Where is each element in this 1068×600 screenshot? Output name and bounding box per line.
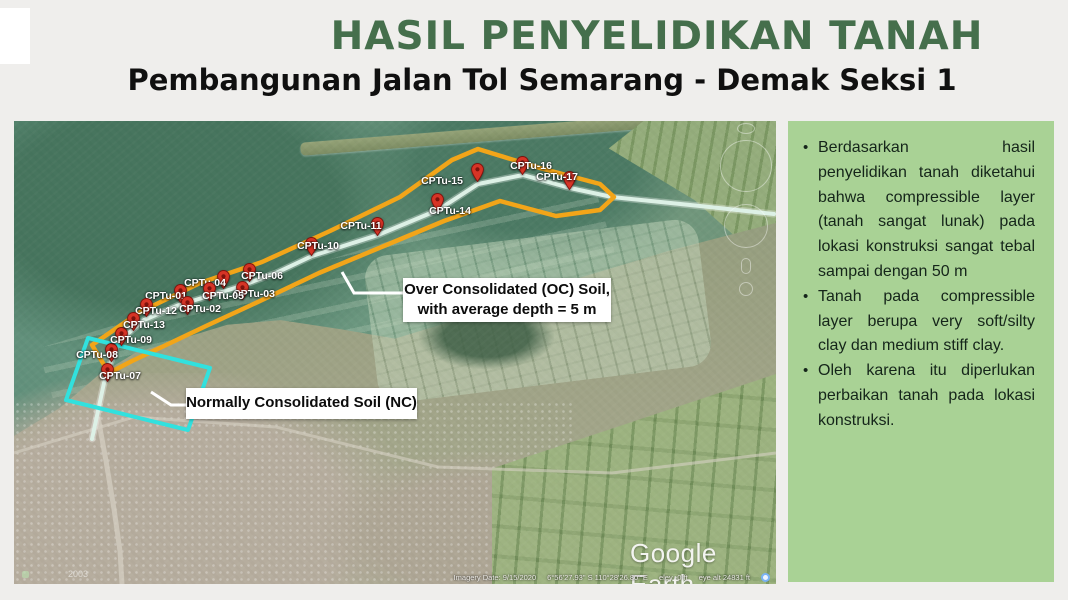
cpt-pin-cptu-15[interactable] xyxy=(471,163,484,182)
zoom-knob-icon[interactable] xyxy=(739,282,753,296)
bullet-text: Tanah pada compressible layer berupa ver… xyxy=(818,285,1035,359)
cpt-label-cptu-11: CPTu-11 xyxy=(340,220,381,232)
corner-accent xyxy=(0,8,30,64)
street-view-icon[interactable] xyxy=(741,258,751,274)
look-control-icon[interactable] xyxy=(737,123,755,134)
cpt-label-cptu-10: CPTu-10 xyxy=(297,240,339,252)
bullet-text: Oleh karena itu diperlukan perbaikan tan… xyxy=(818,359,1035,433)
bullet-dot: • xyxy=(803,136,818,285)
cpt-label-cptu-12: CPTu-12 xyxy=(135,305,177,317)
cpt-label-cptu-13: CPTu-13 xyxy=(123,319,165,331)
status-globe-icon xyxy=(761,573,770,582)
map-status-bar: Imagery Date: 9/15/2020 6°56'27.93" S 11… xyxy=(454,573,770,582)
imagery-date: Imagery Date: 9/15/2020 xyxy=(454,573,537,582)
notes-bullet-list: •Berdasarkan hasil penyelidikan tanah di… xyxy=(803,136,1035,434)
bullet-item: •Oleh karena itu diperlukan perbaikan ta… xyxy=(803,359,1035,433)
satellite-map[interactable]: CPTu-01CPTu-02CPTu-03CPTu-04CPTu-05CPTu-… xyxy=(14,121,776,584)
cpt-label-cptu-15: CPTu-15 xyxy=(421,175,463,187)
cpt-markers-layer: CPTu-01CPTu-02CPTu-03CPTu-04CPTu-05CPTu-… xyxy=(14,121,776,584)
bullet-dot: • xyxy=(803,285,818,359)
bullet-item: •Tanah pada compressible layer berupa ve… xyxy=(803,285,1035,359)
cpt-label-cptu-14: CPTu-14 xyxy=(429,205,471,217)
bullet-text: Berdasarkan hasil penyelidikan tanah dik… xyxy=(818,136,1035,285)
cpt-label-cptu-17: CPTu-17 xyxy=(536,171,578,183)
compass-ring-icon[interactable] xyxy=(720,140,772,192)
history-year: 2003 xyxy=(68,569,88,579)
coordinates: 6°56'27.93" S 110°28'26.80" E xyxy=(547,573,648,582)
oc-soil-label-line2: with average depth = 5 m xyxy=(403,300,611,320)
oc-soil-label-line1: Over Consolidated (OC) Soil, xyxy=(403,280,611,300)
navigation-controls[interactable] xyxy=(717,123,775,296)
history-slider-icon[interactable] xyxy=(22,571,29,578)
pan-ring-icon[interactable] xyxy=(724,204,768,248)
cpt-label-cptu-07: CPTu-07 xyxy=(99,370,141,382)
page-subtitle: Pembangunan Jalan Tol Semarang - Demak S… xyxy=(30,63,1054,97)
cpt-label-cptu-09: CPTu-09 xyxy=(110,334,152,346)
bullet-item: •Berdasarkan hasil penyelidikan tanah di… xyxy=(803,136,1035,285)
cpt-label-cptu-02: CPTu-02 xyxy=(179,303,221,315)
oc-soil-label: Over Consolidated (OC) Soil, with averag… xyxy=(403,278,611,322)
notes-panel: •Berdasarkan hasil penyelidikan tanah di… xyxy=(788,121,1054,582)
cpt-label-cptu-08: CPTu-08 xyxy=(76,349,118,361)
elevation: elev -0 ft xyxy=(659,573,688,582)
slide-background: HASIL PENYELIDIKAN TANAH Pembangunan Jal… xyxy=(0,0,1068,600)
bullet-dot: • xyxy=(803,359,818,433)
page-title: HASIL PENYELIDIKAN TANAH xyxy=(260,14,1054,59)
nc-soil-label: Normally Consolidated Soil (NC) xyxy=(186,388,417,419)
eye-altitude: eye alt 24831 ft xyxy=(699,573,750,582)
cpt-label-cptu-06: CPTu-06 xyxy=(241,270,283,282)
cpt-label-cptu-05: CPTu-05 xyxy=(202,290,244,302)
